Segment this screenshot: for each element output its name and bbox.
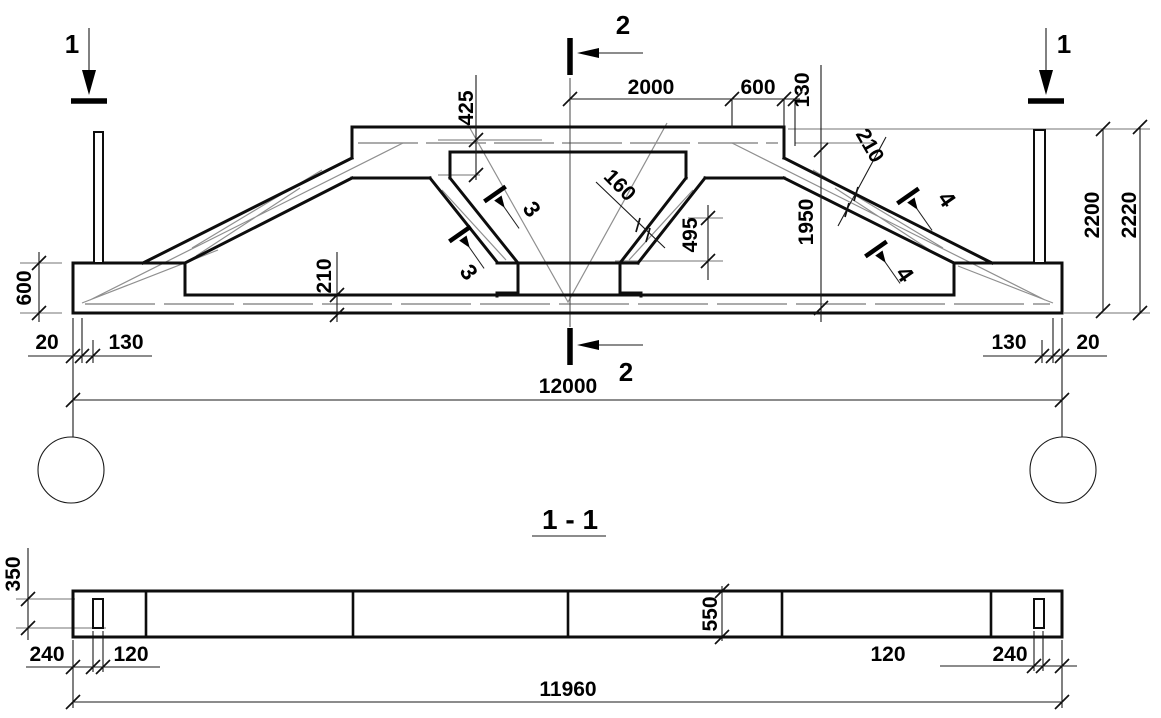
dim-210-diagonal: 210 bbox=[851, 125, 888, 167]
grid-bubble-left bbox=[38, 437, 104, 503]
elevation-dimension-texts: 2000 600 130 425 1950 2200 2220 210 160 … bbox=[13, 72, 1141, 398]
construction-lines bbox=[16, 78, 1150, 628]
dim-600-left: 600 bbox=[13, 270, 36, 305]
cut-mark-4a bbox=[897, 189, 942, 238]
marker-1-right-label: 1 bbox=[1057, 29, 1071, 59]
dim-130-left: 130 bbox=[108, 331, 143, 354]
dim-120-left: 120 bbox=[113, 643, 148, 666]
dim-210-chord: 210 bbox=[313, 258, 336, 293]
truss-elevation bbox=[73, 127, 1062, 313]
dim-20-right: 20 bbox=[1076, 331, 1099, 354]
dim-350: 350 bbox=[2, 556, 25, 591]
embed-slot-right bbox=[1034, 599, 1044, 628]
dim-160: 160 bbox=[599, 165, 640, 206]
dim-425: 425 bbox=[455, 90, 478, 125]
dim-130-right: 130 bbox=[991, 331, 1026, 354]
dim-12000: 12000 bbox=[539, 375, 597, 398]
support-dowel-right bbox=[1034, 130, 1045, 263]
dim-11960: 11960 bbox=[539, 678, 596, 701]
section-marker-1-right: 1 bbox=[1028, 28, 1071, 101]
dim-240-left: 240 bbox=[29, 643, 64, 666]
section-1-1-view: 1 - 1 350 240 120 550 120 240 11960 bbox=[2, 504, 1062, 701]
cut-3b-label: 3 bbox=[455, 259, 484, 284]
section-title: 1 - 1 bbox=[542, 504, 598, 535]
dim-2220: 2220 bbox=[1118, 192, 1141, 239]
dim-130-top: 130 bbox=[791, 72, 814, 107]
section-marker-2-top: 2 bbox=[570, 10, 643, 75]
dim-240-right: 240 bbox=[992, 643, 1027, 666]
cut-4b-label: 4 bbox=[891, 261, 920, 287]
dim-1950: 1950 bbox=[795, 199, 818, 246]
truss-outline bbox=[73, 127, 1062, 313]
drawing-sheet: 1 1 2 2 3 3 4 4 2000 600 130 425 1950 22… bbox=[0, 0, 1161, 718]
dim-20-left: 20 bbox=[35, 331, 58, 354]
marker-2-top-label: 2 bbox=[616, 10, 630, 40]
cut-3a-label: 3 bbox=[518, 196, 547, 221]
dim-600-top: 600 bbox=[740, 76, 775, 99]
section-marker-1-left: 1 bbox=[65, 28, 107, 101]
dim-2200: 2200 bbox=[1081, 192, 1104, 239]
dim-2000: 2000 bbox=[628, 76, 675, 99]
dim-120-right: 120 bbox=[870, 643, 905, 666]
marker-1-left-label: 1 bbox=[65, 29, 79, 59]
support-dowel-left bbox=[94, 132, 103, 263]
cut-4a-label: 4 bbox=[933, 186, 962, 212]
dim-495: 495 bbox=[679, 217, 702, 252]
beam-joint-lines bbox=[146, 591, 991, 637]
embed-slot-left bbox=[93, 599, 103, 628]
grid-bubble-right bbox=[1030, 437, 1096, 503]
technical-drawing: 1 1 2 2 3 3 4 4 2000 600 130 425 1950 22… bbox=[0, 0, 1161, 718]
dim-550: 550 bbox=[699, 596, 722, 631]
marker-2-bottom-label: 2 bbox=[619, 357, 633, 387]
